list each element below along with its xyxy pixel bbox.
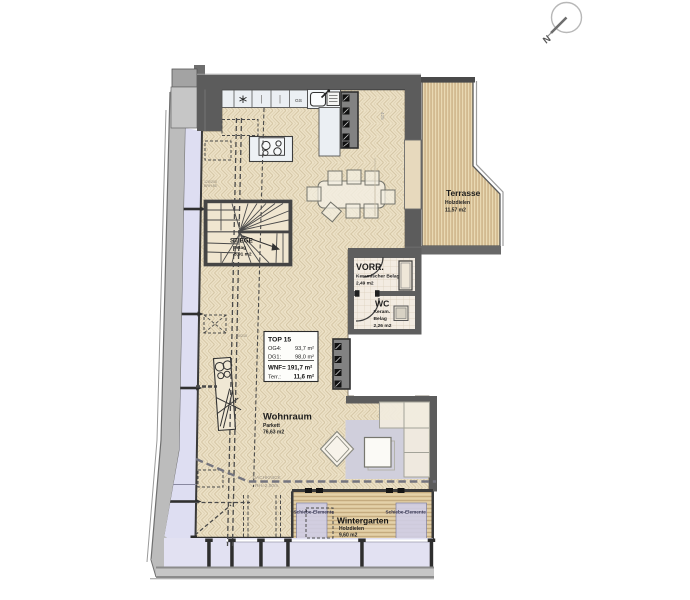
svg-text:Wintergarten: Wintergarten bbox=[337, 516, 389, 526]
svg-text:2,49 m2: 2,49 m2 bbox=[356, 281, 374, 287]
svg-text:9,60 m2: 9,60 m2 bbox=[339, 533, 358, 539]
svg-text:DG1:: DG1: bbox=[268, 355, 282, 361]
svg-text:WC: WC bbox=[375, 299, 389, 309]
svg-text:90/210: 90/210 bbox=[236, 334, 247, 338]
svg-text:425: 425 bbox=[380, 112, 385, 120]
svg-text:Keram.: Keram. bbox=[374, 309, 391, 315]
svg-text:11,57 m2: 11,57 m2 bbox=[445, 208, 466, 214]
svg-text:BRH 85: BRH 85 bbox=[204, 184, 217, 188]
svg-text:3,91 m2: 3,91 m2 bbox=[234, 252, 252, 258]
svg-text:Keramischer Belag: Keramischer Belag bbox=[356, 274, 400, 280]
svg-text:93,7 m²: 93,7 m² bbox=[295, 346, 314, 352]
svg-text:98,0 m²: 98,0 m² bbox=[295, 355, 314, 361]
svg-text:Holzdielen: Holzdielen bbox=[339, 526, 364, 532]
svg-text:DACHKNICK: DACHKNICK bbox=[253, 475, 282, 481]
svg-text:76,63 m2: 76,63 m2 bbox=[263, 430, 284, 436]
svg-text:11,6 m²: 11,6 m² bbox=[294, 374, 314, 381]
svg-text:Terrasse: Terrasse bbox=[446, 188, 481, 198]
svg-text:GS: GS bbox=[295, 98, 302, 104]
svg-text:TOP 15: TOP 15 bbox=[268, 337, 291, 344]
svg-text:Schiebe-Elemente: Schiebe-Elemente bbox=[386, 510, 427, 515]
svg-text:Belag: Belag bbox=[374, 316, 387, 322]
svg-text:OG4:: OG4: bbox=[268, 346, 282, 352]
svg-text:Belag: Belag bbox=[233, 245, 246, 251]
svg-text:VORR.: VORR. bbox=[356, 262, 384, 272]
svg-text:Parkett: Parkett bbox=[263, 423, 280, 429]
svg-text:Holzdielen: Holzdielen bbox=[445, 200, 470, 206]
svg-text:Wohnraum: Wohnraum bbox=[263, 411, 312, 422]
svg-text:2,26 m2: 2,26 m2 bbox=[374, 323, 392, 329]
svg-text:Terr.:: Terr.: bbox=[268, 375, 281, 381]
svg-text:RH=2,50m: RH=2,50m bbox=[255, 483, 278, 489]
svg-text:WNF= 191,7 m²: WNF= 191,7 m² bbox=[268, 365, 312, 372]
svg-text:Schiebe-Elemente: Schiebe-Elemente bbox=[294, 510, 335, 515]
